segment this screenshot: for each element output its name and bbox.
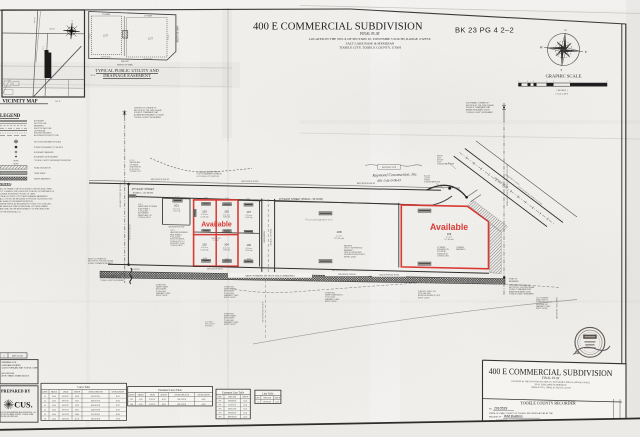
svg-text:RIGHT OF WAY: RIGHT OF WAY	[117, 64, 133, 67]
svg-text:E75: E75	[130, 399, 133, 401]
svg-text:W: W	[539, 45, 542, 49]
svg-text:Curve Table: Curve Table	[77, 386, 91, 389]
svg-text:39.28: 39.28	[75, 405, 79, 407]
svg-text:25.00: 25.00	[52, 405, 56, 407]
svg-text:FUTURE BY: FUTURE BY	[437, 251, 447, 253]
svg-text:57°01'10": 57°01'10"	[149, 399, 156, 401]
svg-text:NOTES:: NOTES:	[0, 182, 12, 186]
svg-text:BK 23 PG 4 2–2: BK 23 PG 4 2–2	[455, 26, 514, 35]
svg-text:30.00': 30.00'	[437, 162, 442, 164]
svg-text:CHORD LENGTH: CHORD LENGTH	[112, 392, 124, 394]
svg-text:90°02'20": 90°02'20"	[62, 396, 69, 398]
svg-text:ATTN: GRANT, GRAND BUILDS: ATTN: GRANT, GRAND BUILDS	[2, 375, 30, 378]
svg-text:35.34: 35.34	[116, 401, 120, 403]
svg-text:29.57': 29.57'	[437, 158, 442, 160]
svg-text:CONTROLLING: CONTROLLING	[437, 255, 450, 257]
svg-text:PREPARED BY: PREPARED BY	[1, 389, 30, 394]
svg-text:10 P.U.&D.E.: 10 P.U.&D.E.	[101, 57, 111, 59]
svg-text:Easement Line Table: Easement Line Table	[222, 392, 245, 395]
svg-text:4TH EAST STREET (PUBLIC - 60': 4TH EAST STREET (PUBLIC - 60' ROW)	[279, 198, 323, 201]
svg-text:DIRECTION: DIRECTION	[228, 397, 236, 399]
svg-text:1 inch = 60 ft.: 1 inch = 60 ft.	[555, 92, 569, 95]
svg-text:L=39.27': L=39.27'	[424, 178, 431, 180]
svg-text:CHORD DIRECTION: CHORD DIRECTION	[88, 392, 103, 394]
svg-text:(435) 882-0061: (435) 882-0061	[2, 373, 15, 375]
svg-text:TOOELE COUNTY MONUMENT: TOOELE COUNTY MONUMENT	[509, 293, 534, 295]
svg-text:WESTERN, INC: WESTERN, INC	[536, 304, 549, 306]
svg-text:S0°01'W: S0°01'W	[437, 160, 444, 162]
svg-text:42 FRAME: 42 FRAME	[144, 15, 153, 18]
svg-text:108: 108	[336, 230, 341, 234]
svg-text:N45°01'10"E: N45°01'10"E	[228, 409, 236, 411]
svg-text:121.31: 121.31	[75, 418, 80, 420]
svg-text:AS IDEAS) STORM WATER RETENTIO: AS IDEAS) STORM WATER RETENTION.	[0, 200, 34, 203]
svg-text:(200 NORTH - NOT A PART): (200 NORTH - NOT A PART)	[556, 297, 559, 319]
svg-text:IRRIG DITCH: IRRIG DITCH	[205, 324, 216, 326]
svg-text:N89°58'50"W: N89°58'50"W	[228, 417, 237, 419]
svg-text:0.21 acre: 0.21 acre	[245, 248, 252, 250]
svg-text:LINE #: LINE #	[256, 397, 260, 399]
svg-text:TOOELE COUNTY MONUMENT: TOOELE COUNTY MONUMENT	[100, 280, 124, 282]
svg-text:NO.: NO.	[489, 409, 493, 411]
svg-text:ENTRY 164234: ENTRY 164234	[325, 301, 337, 303]
svg-text:E95: E95	[219, 417, 222, 419]
svg-text:54.00': 54.00'	[225, 258, 230, 260]
svg-text:N0°01'10"E 264.00': N0°01'10"E 264.00'	[130, 224, 132, 240]
svg-text:Available: Available	[201, 220, 232, 229]
svg-text:N89°58'50"W 660.00': N89°58'50"W 660.00'	[332, 270, 349, 272]
svg-text:ALL 5/8" REBAR & CAP (FOCUS EN: ALL 5/8" REBAR & CAP (FOCUS ENG) TO BE S…	[0, 187, 52, 190]
svg-text:90°02'20": 90°02'20"	[62, 405, 69, 407]
svg-text:PHONE (435) 882-0061: PHONE (435) 882-0061	[1, 416, 19, 418]
svg-text:0.21 acre: 0.21 acre	[223, 215, 230, 217]
svg-text:106: 106	[247, 243, 252, 247]
svg-text:FINAL PLAT: FINAL PLAT	[360, 32, 381, 36]
svg-text:105: 105	[224, 210, 229, 214]
svg-text:LOT: LOT	[103, 34, 108, 37]
svg-text:54.00': 54.00'	[247, 259, 252, 261]
svg-text:103: 103	[202, 209, 207, 213]
svg-text:4TH EAST STREET: 4TH EAST STREET	[132, 188, 155, 191]
svg-text:C6: C6	[44, 418, 46, 420]
svg-text:25.00: 25.00	[52, 409, 56, 411]
svg-text:S0°01'10"W: S0°01'10"W	[228, 405, 236, 407]
svg-text:N45°02'10"W: N45°02'10"W	[91, 405, 101, 407]
svg-text:173.58': 173.58'	[213, 240, 219, 242]
svg-text:WATER EASEMENT: WATER EASEMENT	[34, 178, 52, 181]
svg-text:200 NORTH: 200 NORTH	[264, 231, 266, 243]
svg-text:7,512 sqft: 7,512 sqft	[173, 210, 181, 213]
svg-text:OR THE INDIVIDUAL LOT.: OR THE INDIVIDUAL LOT.	[0, 210, 22, 213]
svg-text:C4: C4	[44, 409, 46, 411]
svg-text:ENTRY 164232: ENTRY 164232	[224, 297, 236, 299]
svg-text:S44°57'50"W: S44°57'50"W	[91, 409, 101, 411]
svg-text:EXISTING: EXISTING	[205, 326, 213, 328]
svg-text:LOT CORNERS. THE CURB FLOW TO: LOT CORNERS. THE CURB FLOW TO BE SET OUT…	[0, 190, 54, 193]
svg-text:N64°22'30"E: N64°22'30"E	[91, 418, 100, 420]
svg-text:35.34: 35.34	[116, 409, 120, 411]
svg-text:FD/FD: FD/FD	[14, 163, 20, 165]
svg-text:BE DEEDED AT TIME OF INDIVIDUA: BE DEEDED AT TIME OF INDIVIDUAL LOT DEVE…	[0, 205, 49, 208]
svg-text:LOT: LOT	[148, 38, 153, 41]
svg-text:109: 109	[447, 232, 452, 236]
svg-text:400 EAST STREET (66' ROW): 400 EAST STREET (66' ROW)	[119, 182, 122, 207]
svg-text:40.1 WIDE: 40.1 WIDE	[205, 322, 213, 324]
svg-text:46.78: 46.78	[162, 404, 166, 406]
svg-text:89°57'40": 89°57'40"	[62, 409, 69, 411]
svg-text:35.37: 35.37	[116, 405, 120, 407]
svg-text:ENTRY 164236: ENTRY 164236	[536, 308, 548, 310]
svg-text:102: 102	[202, 242, 207, 246]
svg-text:E72: E72	[219, 405, 222, 407]
svg-text:15.00: 15.00	[275, 402, 279, 404]
svg-text:SUBDIVISION: SUBDIVISION	[437, 253, 448, 255]
svg-text:CURB AT EXTENSION OF SIDE LOT: CURB AT EXTENSION OF SIDE LOT LINES.	[0, 192, 36, 195]
svg-text:LINE #: LINE #	[218, 397, 223, 399]
svg-text:E73: E73	[219, 409, 222, 411]
svg-text:N.T.S.: N.T.S.	[55, 101, 61, 103]
svg-text:OF TOOELE CITY (2387-99): OF TOOELE CITY (2387-99)	[197, 176, 220, 178]
svg-text:39.25: 39.25	[75, 401, 79, 403]
svg-text:42 FRAME: 42 FRAME	[102, 13, 111, 16]
svg-text:CUS.: CUS.	[14, 401, 32, 410]
svg-text:GRAPHIC SCALE: GRAPHIC SCALE	[546, 74, 582, 79]
svg-text:SECTION MONUMENT (FOUND): SECTION MONUMENT (FOUND)	[34, 141, 62, 143]
svg-text:1000 NORTH (66' ROW): 1000 NORTH (66' ROW)	[379, 275, 399, 277]
svg-text:S45°02'10"E: S45°02'10"E	[91, 396, 100, 398]
svg-text:46.78: 46.78	[162, 399, 166, 401]
svg-text:TOOELE CITY: TOOELE CITY	[130, 171, 142, 173]
svg-text:P 106-0-0045: P 106-0-0045	[224, 320, 234, 322]
svg-text:25.00: 25.00	[52, 396, 56, 398]
svg-text:54.00: 54.00	[52, 418, 56, 420]
svg-text:10.00: 10.00	[243, 401, 247, 403]
svg-text:CHORD DIRECTION: CHORD DIRECTION	[174, 395, 189, 397]
svg-text:ENTRY 164235: ENTRY 164235	[418, 297, 430, 299]
svg-text:R=25.00': R=25.00'	[424, 176, 431, 178]
svg-text:N28°31'45"E: N28°31'45"E	[177, 404, 186, 406]
svg-text:0.21 acre: 0.21 acre	[223, 248, 230, 250]
svg-text:E96: E96	[130, 404, 133, 406]
svg-text:104: 104	[224, 243, 229, 247]
svg-text:S89°58'50"E: S89°58'50"E	[228, 401, 236, 403]
svg-text:Easement Curve Table: Easement Curve Table	[158, 389, 182, 392]
svg-text:MONUMENT IN: MONUMENT IN	[437, 249, 450, 251]
svg-text:OVERLAKE ESTATES: OVERLAKE ESTATES	[2, 364, 22, 367]
svg-text:ALL LOTS WILL BE REQUIRED TO P: ALL LOTS WILL BE REQUIRED TO PROVIDE ON-…	[0, 198, 53, 201]
svg-text:107: 107	[247, 210, 252, 214]
svg-text:FRONT: FRONT	[121, 61, 129, 63]
svg-text:44.87: 44.87	[202, 404, 206, 406]
svg-text:400 E COMMERCIAL SUBDIVISION: 400 E COMMERCIAL SUBDIVISION	[253, 22, 423, 33]
svg-text:35.37: 35.37	[116, 396, 120, 398]
svg-text:L1: L1	[257, 402, 259, 404]
svg-text:ENTRY 164231: ENTRY 164231	[156, 295, 168, 297]
svg-text:LENGTH: LENGTH	[74, 392, 80, 394]
svg-text:58.00': 58.00'	[203, 258, 208, 260]
svg-text:PK/PK: PK/PK	[14, 160, 20, 162]
svg-text:0.23 acre: 0.23 acre	[201, 214, 208, 216]
svg-text:96.88: 96.88	[75, 414, 79, 416]
svg-text:CURVE #: CURVE #	[128, 395, 135, 397]
svg-text:54.00': 54.00'	[246, 198, 251, 200]
svg-text:P 106-0-0044: P 106-0-0044	[224, 293, 234, 295]
svg-text:801-544-0-0643: 801-544-0-0643	[377, 178, 401, 183]
svg-text:Line Table: Line Table	[262, 392, 274, 395]
svg-text:E71: E71	[219, 401, 222, 403]
svg-text:54.00: 54.00	[52, 414, 56, 416]
svg-text:FINAL PLAT: FINAL PLAT	[542, 376, 560, 380]
svg-text:14.04: 14.04	[243, 405, 247, 407]
svg-text:97.26: 97.26	[116, 418, 120, 420]
svg-text:N44°57'50"E: N44°57'50"E	[91, 401, 100, 403]
svg-text:CHORD: CHORD	[424, 180, 431, 182]
svg-text:S89°58'50"E 1320.00': S89°58'50"E 1320.00'	[338, 274, 356, 276]
svg-text:BOUNDARY MARKERS: BOUNDARY MARKERS	[34, 151, 54, 154]
svg-text:TOOELE, 84074: TOOELE, 84074	[138, 217, 151, 219]
svg-text:S89°58'50"E 660.18': S89°58'50"E 660.18'	[357, 183, 376, 185]
svg-text:S89°58'50"E: S89°58'50"E	[212, 238, 221, 240]
svg-text:S89°58'50"E: S89°58'50"E	[228, 413, 236, 415]
svg-text:S51°24'50"E: S51°24'50"E	[91, 414, 100, 416]
svg-text:SALT LAKE BASE & MERIDIAN: SALT LAKE BASE & MERIDIAN	[346, 41, 395, 45]
svg-text:25.00: 25.00	[52, 401, 56, 403]
svg-text:0.23 acre: 0.23 acre	[201, 247, 208, 249]
svg-text:LOT 2 SUNRISE: LOT 2 SUNRISE	[536, 298, 549, 300]
svg-text:(PUBLIC - 60' ROW): (PUBLIC - 60' ROW)	[271, 228, 273, 245]
svg-text:200 NORTH (NOT A PART): 200 NORTH (NOT A PART)	[261, 301, 264, 322]
svg-text:PREPARED FOR: PREPARED FOR	[2, 361, 17, 364]
svg-text:47.00: 47.00	[139, 399, 143, 401]
svg-text:117,369 sqft: 117,369 sqft	[444, 238, 454, 241]
svg-text:S89°58'50"E 424.38': S89°58'50"E 424.38'	[241, 181, 259, 183]
svg-text:TOOELE, 84074: TOOELE, 84074	[170, 245, 183, 247]
svg-text:P 106-0-0042: P 106-0-0042	[156, 291, 166, 293]
svg-text:LENGTH: LENGTH	[274, 397, 280, 399]
svg-text:S89°58': S89°58'	[437, 156, 443, 158]
svg-text:7 P.U.E.: 7 P.U.E.	[90, 33, 92, 39]
svg-text:DATE 10/7/02: DATE 10/7/02	[12, 355, 23, 358]
svg-text:BEGINNING: BEGINNING	[509, 281, 519, 283]
svg-text:C1: C1	[44, 396, 46, 398]
svg-text:E: E	[585, 50, 587, 54]
svg-text:N89°58'50"W 173.58': N89°58'50"W 173.58'	[169, 227, 186, 229]
svg-text:44.87: 44.87	[202, 399, 206, 401]
svg-text:ADJOINING PROPERTY LINE: ADJOINING PROPERTY LINE	[34, 134, 59, 137]
svg-text:S89°58'50"E 660.18': S89°58'50"E 660.18'	[151, 179, 170, 181]
svg-text:101: 101	[174, 203, 179, 207]
svg-text:ROAD DEDICATION: ROAD DEDICATION	[34, 166, 51, 169]
svg-text:TOOELE COUNTY DEPENDENT RESURV: TOOELE COUNTY DEPENDENT RESURVEY	[34, 160, 72, 162]
svg-text:S28°31'45"E: S28°31'45"E	[177, 399, 186, 401]
svg-text:THE A (10') PUBLIC UTILITY AND: THE A (10') PUBLIC UTILITY AND DRAINAGE …	[0, 195, 48, 198]
svg-text:AND SHALL BE THE RESPONSIBILIT: AND SHALL BE THE RESPONSIBILITY OF THE D…	[0, 208, 50, 211]
svg-text:15.04: 15.04	[243, 413, 247, 415]
svg-text:10.00: 10.00	[243, 417, 247, 419]
svg-text:0.21 acre: 0.21 acre	[245, 215, 252, 217]
svg-text:STREET MONUMENT (TO BE SET): STREET MONUMENT (TO BE SET)	[34, 147, 64, 149]
svg-text:SR-112: SR-112	[49, 29, 55, 31]
svg-text:ENTRY 164233: ENTRY 164233	[224, 324, 236, 326]
svg-text:N89°58'50"W 330.00': N89°58'50"W 330.00'	[207, 268, 224, 270]
svg-text:1244 N OVERLAND WAY TOOELE, UT: 1244 N OVERLAND WAY TOOELE, UTAH	[2, 367, 38, 370]
svg-text:P 106-0-0046: P 106-0-0046	[325, 297, 335, 299]
svg-text:RIGHT OF WAY: RIGHT OF WAY	[177, 25, 180, 42]
svg-text:DRAINAGE EASEMENT: DRAINAGE EASEMENT	[103, 73, 151, 78]
svg-text:TOOELE COUNTY MONUMENT: TOOELE COUNTY MONUMENT	[466, 112, 494, 114]
svg-text:102°47'20": 102°47'20"	[62, 414, 70, 416]
svg-text:S89°58'50"E: S89°58'50"E	[263, 402, 271, 404]
svg-text:E74: E74	[219, 413, 222, 415]
svg-text:39.25: 39.25	[75, 409, 79, 411]
svg-text:C5: C5	[44, 414, 46, 416]
svg-text:C2: C2	[44, 401, 46, 403]
svg-text:CURVE #: CURVE #	[42, 392, 49, 394]
svg-text:WATER RIGHTS, AS REQUIRED BY T: WATER RIGHTS, AS REQUIRED BY TOOELE CITY…	[0, 203, 52, 206]
svg-text:128°42'40": 128°42'40"	[62, 418, 70, 420]
svg-text:57°01'10": 57°01'10"	[149, 404, 156, 406]
svg-text:10.73: 10.73	[243, 409, 247, 411]
svg-text:39.28: 39.28	[75, 396, 79, 398]
svg-text:DIRECTION: DIRECTION	[263, 397, 271, 399]
svg-text:7 P.U.E.: 7 P.U.E.	[168, 34, 170, 40]
svg-text:84.43: 84.43	[116, 414, 120, 416]
svg-text:OPEN SPACE: OPEN SPACE	[34, 172, 46, 175]
svg-text:400 E: 400 E	[42, 46, 44, 50]
svg-text:N.T.S.: N.T.S.	[91, 75, 96, 77]
svg-text:TOOELE COUNTY MONUMENT: TOOELE COUNTY MONUMENT	[134, 117, 162, 119]
svg-text:S89°58'50"E: S89°58'50"E	[130, 269, 140, 271]
svg-text:ESTEEL (2004): ESTEEL (2004)	[344, 256, 356, 258]
svg-text:(PUBLIC - 60' ROW): (PUBLIC - 60' ROW)	[133, 193, 153, 195]
svg-text:BOUNDARY 5/8 MONUMENT: BOUNDARY 5/8 MONUMENT	[34, 155, 59, 158]
svg-text:TOOELE COUNTY RECORDER: TOOELE COUNTY RECORDER	[520, 401, 576, 406]
svg-text:47.00: 47.00	[139, 404, 143, 406]
svg-text:Four paragraph text: Four paragraph text	[305, 218, 332, 222]
svg-text:89°57'40": 89°57'40"	[62, 401, 69, 403]
svg-text:10 P.U.&D.E.: 10 P.U.&D.E.	[143, 59, 153, 61]
svg-text:CHORD LENGTH: CHORD LENGTH	[197, 395, 209, 397]
svg-text:Available: Available	[430, 222, 468, 232]
svg-text:LENGTH: LENGTH	[242, 397, 248, 399]
svg-text:BASIS OF BEARING S89°58'50"E: BASIS OF BEARING S89°58'50"E 2640.00' (M…	[245, 275, 294, 278]
svg-text:LENGTH: LENGTH	[161, 395, 167, 397]
svg-text:( IN FEET ): ( IN FEET )	[556, 90, 567, 92]
svg-text:117,369 sqft: 117,369 sqft	[334, 237, 344, 240]
svg-text:C3: C3	[44, 405, 46, 407]
svg-text:BRUSH MONUMENTS (7003): BRUSH MONUMENTS (7003)	[418, 295, 441, 297]
svg-text:EXISTING 8" WTR: EXISTING 8" WTR	[382, 167, 397, 169]
